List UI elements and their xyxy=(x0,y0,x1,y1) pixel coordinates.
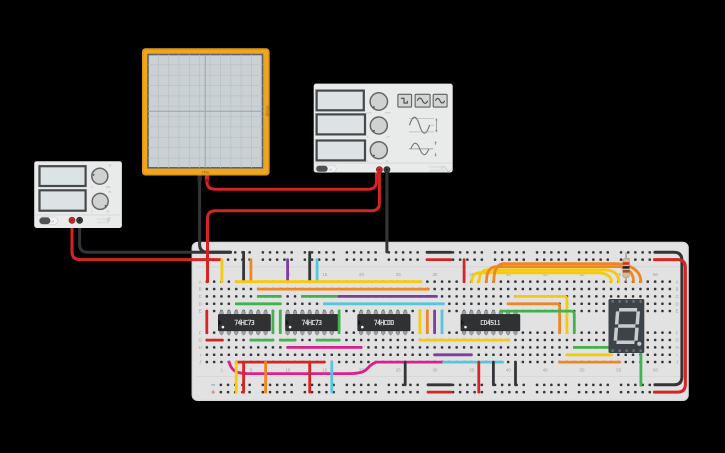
svg-text:B: B xyxy=(676,287,679,292)
svg-text:Time: Time xyxy=(202,170,210,174)
svg-text:10V: 10V xyxy=(386,136,390,138)
svg-text:15: 15 xyxy=(322,272,327,277)
svg-text:30V: 30V xyxy=(106,186,111,189)
svg-text:H: H xyxy=(675,345,678,350)
svg-text:F: F xyxy=(676,330,679,335)
svg-text:60: 60 xyxy=(653,272,658,277)
svg-text:J: J xyxy=(199,360,201,365)
svg-text:50: 50 xyxy=(580,368,585,373)
svg-text:-5V: -5V xyxy=(365,161,369,163)
svg-text:20: 20 xyxy=(359,272,364,277)
svg-text:15: 15 xyxy=(322,368,327,373)
svg-text:C: C xyxy=(199,294,202,299)
svg-text:D: D xyxy=(199,301,202,306)
svg-text:off: off xyxy=(51,220,54,224)
svg-text:45: 45 xyxy=(543,368,548,373)
svg-text:Voltage: Voltage xyxy=(266,105,270,116)
svg-text:J: J xyxy=(676,360,678,365)
svg-text:F: F xyxy=(199,330,202,335)
svg-text:E: E xyxy=(676,309,679,314)
svg-text:H: H xyxy=(199,345,202,350)
svg-text:60: 60 xyxy=(653,368,658,373)
svg-text:25: 25 xyxy=(396,272,401,277)
svg-text:C: C xyxy=(675,294,678,299)
svg-text:I: I xyxy=(200,352,201,357)
svg-text:30: 30 xyxy=(432,272,437,277)
svg-text:1MHz: 1MHz xyxy=(385,113,391,115)
svg-text:TINKER: TINKER xyxy=(97,220,107,224)
svg-text:40: 40 xyxy=(506,368,511,373)
svg-text:25: 25 xyxy=(396,368,401,373)
svg-text:A: A xyxy=(199,279,202,284)
svg-text:off: off xyxy=(329,169,332,172)
svg-text:B: B xyxy=(199,287,202,292)
svg-text:30: 30 xyxy=(432,368,437,373)
svg-text:55: 55 xyxy=(616,368,621,373)
svg-text:D: D xyxy=(675,301,678,306)
svg-text:I: I xyxy=(676,352,677,357)
svg-text:5A: 5A xyxy=(107,211,110,214)
svg-text:35: 35 xyxy=(469,368,474,373)
svg-text:A: A xyxy=(676,279,679,284)
svg-text:1mHz: 1mHz xyxy=(366,113,372,115)
svg-text:10: 10 xyxy=(285,368,290,373)
svg-text:GENERATOR: GENERATOR xyxy=(429,170,445,173)
svg-text:E: E xyxy=(199,309,202,314)
